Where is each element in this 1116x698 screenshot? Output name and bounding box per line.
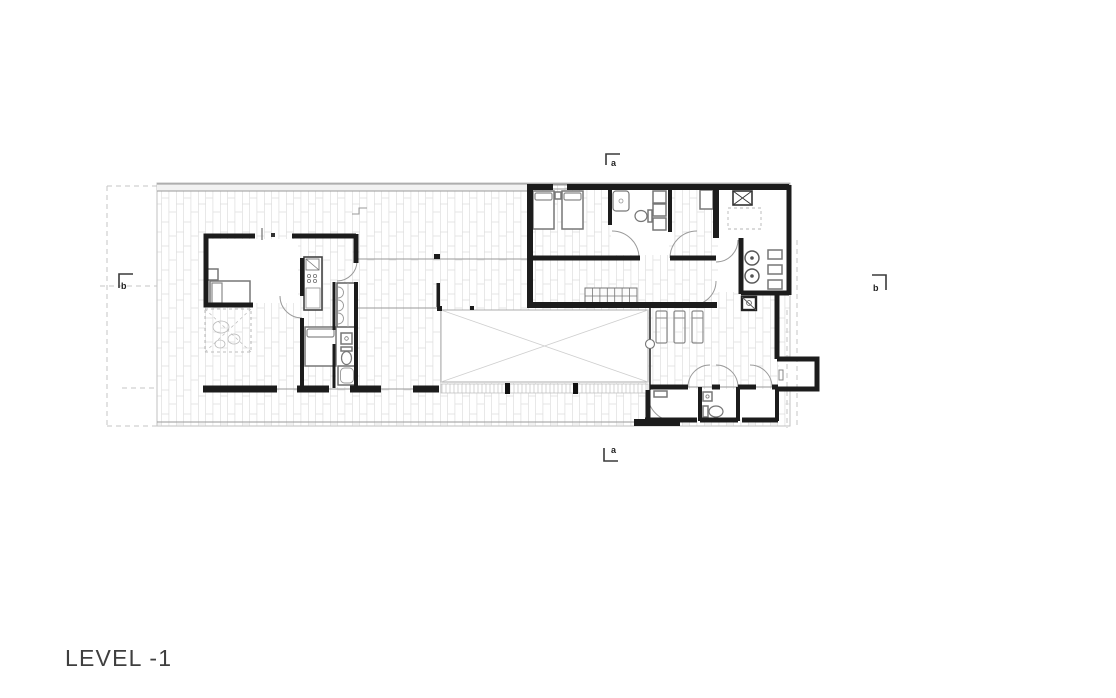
section-letter: b	[873, 283, 879, 293]
bed	[562, 191, 583, 229]
toilet-tank	[703, 406, 708, 417]
section-marker-b-left: b	[119, 274, 133, 291]
toilet-tank	[341, 347, 352, 351]
sink	[341, 333, 352, 344]
page-title: LEVEL -1	[65, 645, 172, 671]
section-letter: a	[611, 445, 617, 455]
kitchenette	[304, 257, 322, 310]
skylight-box	[733, 191, 752, 205]
floor-drain	[646, 340, 655, 349]
shelf	[207, 269, 218, 280]
section-marker-a-bottom: a	[604, 445, 618, 461]
floor-plan-drawing: a a b b LEVEL -1	[0, 0, 1116, 698]
section-letter: a	[611, 158, 617, 168]
outdoor-sink	[742, 297, 756, 310]
bed	[210, 281, 250, 305]
pier-wall	[437, 283, 441, 307]
shelf	[768, 250, 782, 259]
column-post	[573, 383, 578, 394]
pool-gutter	[441, 384, 648, 393]
stairs	[585, 288, 637, 304]
vanity-cabinet	[653, 191, 666, 203]
wardrobe	[337, 283, 356, 327]
shelf	[768, 265, 782, 274]
shelf	[654, 391, 667, 397]
closet	[700, 190, 713, 209]
section-marker-b-right: b	[872, 275, 886, 293]
floor-plan-page: a a b b LEVEL -1	[0, 0, 1116, 698]
column-post	[505, 383, 510, 394]
door-stop	[271, 233, 275, 237]
sink	[703, 392, 712, 401]
toilet-tank	[648, 210, 652, 222]
column-post	[434, 254, 440, 259]
bed	[305, 327, 336, 366]
toilet	[342, 352, 352, 365]
toilet	[635, 211, 647, 222]
nightstand	[555, 192, 561, 199]
column-post	[470, 306, 474, 310]
shower	[613, 191, 629, 211]
entry-wall	[634, 419, 680, 426]
toilet	[709, 406, 723, 417]
vanity-cabinet	[653, 218, 666, 230]
vanity-cabinet	[653, 204, 666, 216]
section-letter: b	[121, 281, 127, 291]
shelf	[768, 280, 782, 289]
bed	[533, 191, 554, 229]
section-marker-a-top: a	[606, 154, 620, 168]
